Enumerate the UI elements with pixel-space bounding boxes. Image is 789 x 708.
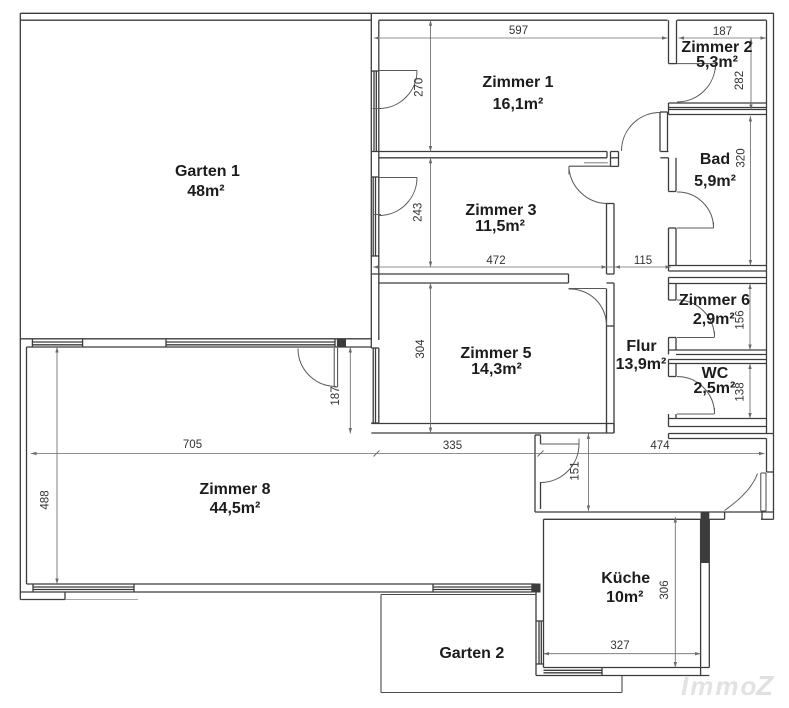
svg-text:705: 705 bbox=[183, 439, 202, 451]
svg-text:14,3m²: 14,3m² bbox=[471, 361, 522, 378]
svg-text:10m²: 10m² bbox=[606, 589, 643, 606]
svg-text:2,9m²: 2,9m² bbox=[693, 311, 735, 328]
svg-text:44,5m²: 44,5m² bbox=[210, 500, 261, 517]
svg-text:Bad: Bad bbox=[700, 151, 730, 168]
svg-text:48m²: 48m² bbox=[187, 183, 224, 200]
svg-text:5,9m²: 5,9m² bbox=[694, 173, 736, 190]
svg-text:2,5m²: 2,5m² bbox=[694, 380, 736, 397]
svg-text:Garten 1: Garten 1 bbox=[175, 163, 240, 180]
svg-text:156: 156 bbox=[735, 310, 747, 329]
svg-text:5,3m²: 5,3m² bbox=[696, 54, 738, 71]
svg-text:472: 472 bbox=[486, 255, 505, 267]
svg-text:115: 115 bbox=[634, 255, 652, 267]
svg-text:Z: Z bbox=[755, 670, 774, 701]
svg-text:Garten 2: Garten 2 bbox=[439, 645, 504, 662]
svg-text:151: 151 bbox=[570, 461, 582, 480]
svg-text:Flur: Flur bbox=[626, 338, 656, 355]
svg-text:Küche: Küche bbox=[601, 570, 650, 587]
svg-text:Zimmer 1: Zimmer 1 bbox=[482, 74, 553, 91]
svg-text:Zimmer 5: Zimmer 5 bbox=[460, 345, 531, 362]
svg-text:11,5m²: 11,5m² bbox=[475, 218, 525, 235]
svg-text:282: 282 bbox=[734, 71, 746, 90]
svg-text:187: 187 bbox=[330, 386, 342, 405]
svg-text:Zimmer 8: Zimmer 8 bbox=[199, 481, 270, 498]
svg-text:16,1m²: 16,1m² bbox=[493, 96, 544, 113]
svg-text:597: 597 bbox=[509, 25, 528, 37]
svg-text:Immo: Immo bbox=[681, 671, 758, 701]
svg-text:327: 327 bbox=[610, 640, 629, 652]
svg-text:488: 488 bbox=[40, 490, 52, 509]
svg-text:320: 320 bbox=[736, 148, 748, 167]
svg-text:138: 138 bbox=[735, 382, 747, 401]
svg-text:270: 270 bbox=[413, 78, 425, 97]
svg-text:306: 306 bbox=[659, 580, 671, 599]
svg-text:Zimmer 6: Zimmer 6 bbox=[679, 292, 750, 309]
svg-text:304: 304 bbox=[415, 339, 427, 359]
svg-text:243: 243 bbox=[413, 203, 425, 222]
svg-text:474: 474 bbox=[650, 440, 670, 452]
svg-text:13,9m²: 13,9m² bbox=[616, 356, 667, 373]
svg-text:335: 335 bbox=[443, 440, 462, 452]
svg-text:Zimmer 3: Zimmer 3 bbox=[465, 202, 536, 219]
svg-text:187: 187 bbox=[713, 26, 732, 38]
